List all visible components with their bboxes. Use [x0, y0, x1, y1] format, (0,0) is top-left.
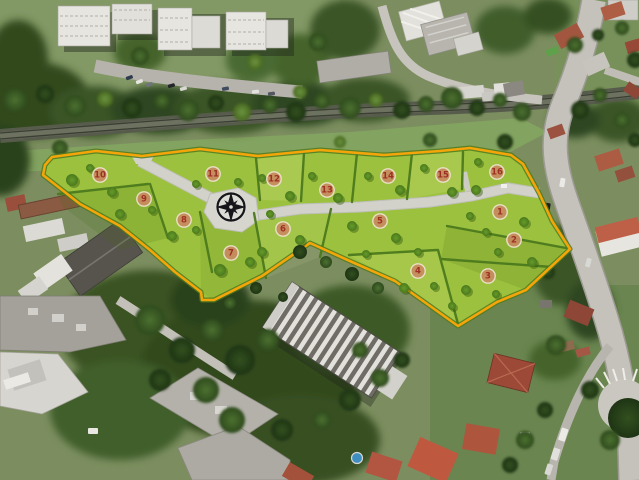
- compass-rose-icon: [216, 192, 247, 223]
- lot-number: 13: [321, 186, 333, 196]
- lot-number: 9: [141, 195, 147, 205]
- lot-number: 15: [437, 171, 449, 181]
- lot-badge-16: 16: [490, 165, 504, 179]
- lot-badge-15: 15: [436, 168, 450, 182]
- lot-badge-14: 14: [381, 169, 395, 183]
- lot-badge-5: 5: [373, 214, 387, 228]
- lot-number: 1: [497, 208, 503, 218]
- lot-number: 5: [377, 217, 383, 227]
- lot-badge-13: 13: [320, 183, 334, 197]
- lot-number: 4: [415, 267, 421, 277]
- lot-badge-7: 7: [224, 246, 238, 260]
- lot-number: 16: [491, 168, 503, 178]
- lot-number: 3: [485, 272, 491, 282]
- lot-number: 7: [228, 249, 234, 259]
- lot-number: 12: [268, 175, 280, 185]
- lot-badge-2: 2: [507, 233, 521, 247]
- lot-badge-6: 6: [276, 222, 290, 236]
- lot-number: 6: [280, 225, 286, 235]
- lot-number: 2: [511, 236, 517, 246]
- lot-badge-9: 9: [137, 192, 151, 206]
- lot-number: 8: [181, 216, 187, 226]
- lot-number: 11: [207, 170, 219, 180]
- lot-badge-11: 11: [206, 167, 220, 181]
- aerial-site-plan-image: 12345678910111213141516: [0, 0, 639, 480]
- swimming-pool: [352, 453, 363, 464]
- lot-badge-3: 3: [481, 269, 495, 283]
- lot-badge-8: 8: [177, 213, 191, 227]
- lot-badge-10: 10: [93, 168, 107, 182]
- lot-number: 10: [94, 171, 106, 181]
- lot-badge-1: 1: [493, 205, 507, 219]
- lot-badge-12: 12: [267, 172, 281, 186]
- lot-number: 14: [382, 172, 394, 182]
- lot-badge-4: 4: [411, 264, 425, 278]
